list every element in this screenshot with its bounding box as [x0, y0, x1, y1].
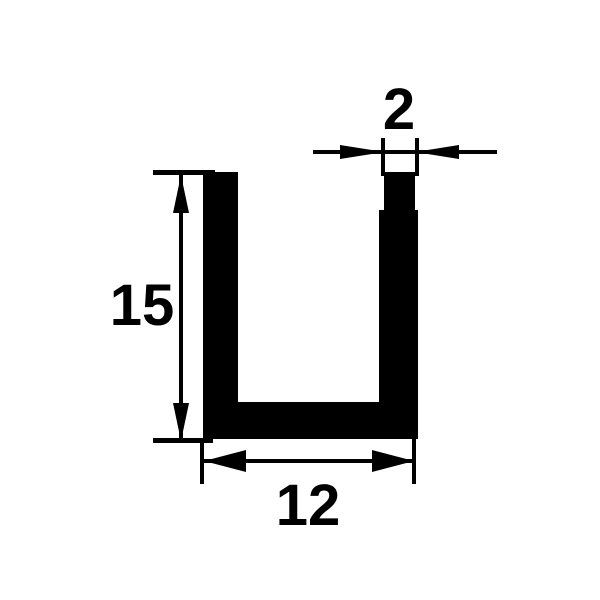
height-dimension-label: 15: [102, 274, 182, 338]
arrow-left-icon: [204, 450, 246, 472]
arrow-pointing-left-icon: [415, 145, 459, 159]
arrow-pointing-right-icon: [340, 145, 384, 159]
profile-left-wall: [203, 172, 238, 439]
width-dimension-label: 12: [268, 474, 348, 538]
arrow-down-icon: [173, 403, 189, 441]
arrow-right-icon: [372, 450, 414, 472]
arrow-up-icon: [173, 175, 189, 213]
thickness-dimension-label: 2: [359, 78, 439, 142]
profile-base: [203, 402, 418, 439]
drawing-canvas: 15 12 2: [0, 0, 600, 600]
